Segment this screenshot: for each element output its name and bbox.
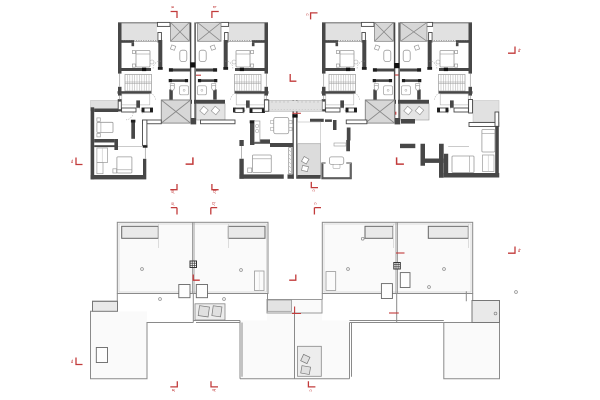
svg-text:a: a bbox=[171, 6, 176, 9]
svg-text:a': a' bbox=[171, 190, 176, 194]
svg-text:b': b' bbox=[211, 202, 216, 206]
svg-text:a': a' bbox=[171, 389, 176, 393]
svg-text:d: d bbox=[71, 359, 74, 364]
svg-text:d': d' bbox=[518, 48, 522, 53]
svg-text:d: d bbox=[71, 159, 74, 164]
svg-text:b: b bbox=[212, 6, 217, 9]
svg-text:b': b' bbox=[212, 190, 217, 194]
svg-text:a': a' bbox=[171, 202, 176, 206]
svg-text:b': b' bbox=[212, 389, 217, 393]
svg-text:d': d' bbox=[518, 248, 522, 253]
